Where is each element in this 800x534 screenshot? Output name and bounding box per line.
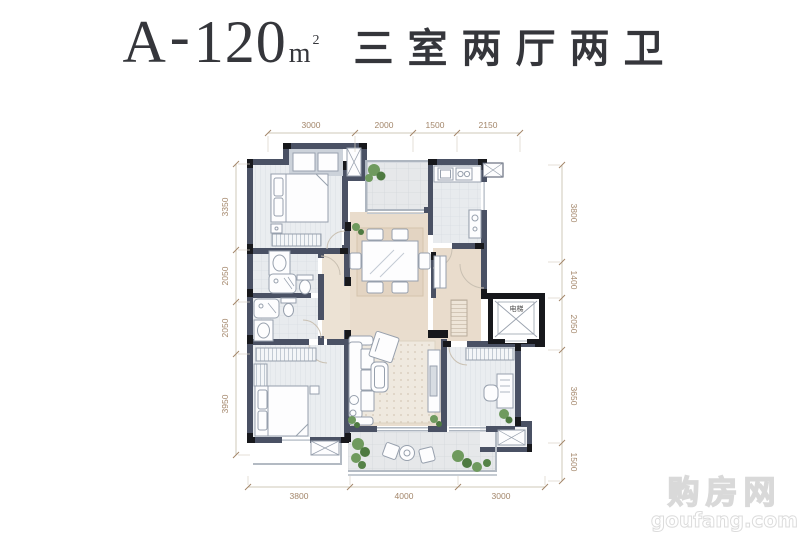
chair (419, 253, 430, 269)
dim-bottom-3: 3000 (492, 491, 511, 501)
dim-top-1: 3000 (302, 120, 321, 130)
chair (350, 253, 361, 269)
chair (392, 282, 408, 293)
shower (254, 299, 279, 318)
desk (497, 374, 513, 408)
corridor-floor (322, 254, 344, 339)
counter-side (469, 210, 481, 238)
elevator-label: 电梯 (510, 304, 524, 313)
side-table (350, 396, 359, 405)
dimensions-left: 3350 2050 2050 3950 (220, 161, 250, 458)
toilet (300, 280, 311, 294)
elevator: 电梯 (488, 297, 545, 344)
dim-left-3: 2050 (220, 318, 230, 337)
dim-right-3: 2050 (569, 315, 579, 334)
sink (258, 323, 270, 338)
dim-right-1: 3800 (569, 204, 579, 223)
wardrobe (466, 348, 514, 360)
wardrobe (272, 234, 321, 246)
dim-bottom-2: 4000 (395, 491, 414, 501)
dim-right-2: 1400 (569, 271, 579, 290)
sink (273, 255, 286, 271)
dim-right-5: 1500 (569, 453, 579, 472)
tv (430, 366, 437, 396)
dining-table (362, 241, 418, 281)
floorplan-page: A - 120 m 2 三室两厅两卫 (0, 0, 800, 534)
desk-chair (484, 385, 498, 401)
dim-right-4: 3650 (569, 387, 579, 406)
dimensions-bottom: 3800 4000 3000 (245, 476, 548, 501)
chair (367, 229, 383, 240)
dim-top-2: 2000 (375, 120, 394, 130)
dim-left-2: 2050 (220, 266, 230, 285)
chair (392, 229, 408, 240)
dim-left-4: 3950 (220, 394, 230, 413)
watermark-name: 购房网 (651, 476, 798, 510)
dim-left-1: 3350 (220, 197, 230, 216)
dim-bottom-1: 3800 (290, 491, 309, 501)
dim-top-4: 2150 (479, 120, 498, 130)
chair (367, 282, 383, 293)
wardrobe (256, 348, 316, 361)
dim-top-3: 1500 (426, 120, 445, 130)
watermark-domain: goufang.com (651, 510, 798, 530)
stool (400, 446, 415, 461)
entry-mat (451, 300, 467, 336)
toilet (284, 304, 294, 317)
floorplan-drawing: 电梯 3000 2000 1500 2150 (0, 0, 800, 534)
stool (419, 447, 436, 464)
watermark: 购房网 goufang.com (651, 476, 798, 530)
dimensions-right: 3800 1400 2050 3650 1500 (548, 162, 579, 484)
sofa (349, 342, 362, 418)
